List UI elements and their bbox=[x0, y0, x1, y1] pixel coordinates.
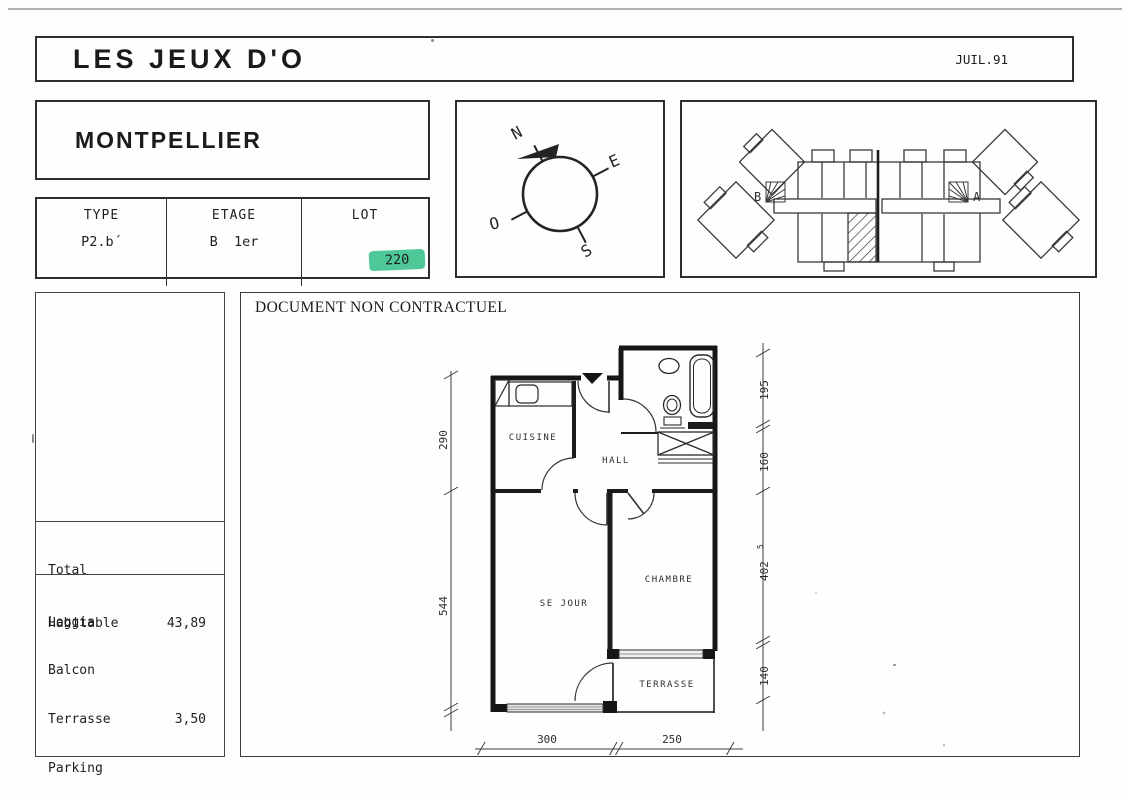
header-box: LES JEUX D'O JUIL.91 bbox=[35, 36, 1074, 82]
scan-speck bbox=[32, 434, 34, 443]
scan-speck bbox=[893, 664, 896, 666]
siteplan-box: B A bbox=[680, 100, 1097, 278]
label-chambre: CHAMBRE bbox=[645, 575, 693, 585]
building-key-plan: B A bbox=[682, 102, 1095, 276]
washbasin-icon bbox=[659, 359, 679, 374]
sejour-window-bay bbox=[507, 704, 603, 712]
scan-speck bbox=[943, 744, 945, 746]
type-value: P2.b´ bbox=[81, 234, 122, 250]
kitchen-sink-icon bbox=[516, 385, 538, 403]
compass-west-label: O bbox=[487, 213, 501, 234]
annex-parking: Parking bbox=[48, 761, 216, 777]
label-cuisine: CUISINE bbox=[509, 433, 557, 443]
type-cell: TYPE P2.b´ bbox=[37, 199, 167, 286]
annex-terrasse: Terrasse bbox=[48, 712, 111, 728]
stair-label-B: B bbox=[754, 190, 761, 204]
etage-value: B 1er bbox=[210, 234, 259, 250]
dim-140: 140 bbox=[758, 666, 771, 686]
annex-section: Loggia Balcon Terrasse 3,50 Parking bbox=[36, 575, 224, 800]
scan-speck bbox=[883, 712, 886, 715]
kitchen-counter bbox=[495, 380, 572, 406]
document-title: LES JEUX D'O bbox=[73, 44, 306, 75]
building-outline bbox=[692, 124, 1085, 271]
dim-544: 544 bbox=[437, 596, 450, 616]
scan-speck bbox=[815, 592, 817, 594]
entry-arrow-icon bbox=[582, 373, 603, 384]
dim-160: 160 bbox=[758, 452, 771, 472]
compass-north-label: N bbox=[508, 122, 525, 143]
label-terrasse: TERRASSE bbox=[639, 680, 694, 690]
compass-south-label: S bbox=[578, 240, 596, 261]
dim-300: 300 bbox=[537, 733, 557, 746]
areas-panel-blank bbox=[36, 293, 224, 522]
areas-panel: Total Habitable 43,89 Loggia Balcon Terr… bbox=[35, 292, 225, 757]
toilet-icon bbox=[664, 396, 681, 415]
annex-balcon: Balcon bbox=[48, 663, 216, 679]
scanned-floorplan-document: LES JEUX D'O JUIL.91 MONTPELLIER TYPE P2… bbox=[0, 0, 1129, 800]
dim-402: 402 bbox=[758, 561, 771, 581]
lot-table: TYPE P2.b´ ETAGE B 1er LOT 220 bbox=[35, 197, 430, 279]
current-unit-hatched bbox=[848, 213, 876, 262]
compass-rose-icon: N E O S bbox=[457, 102, 663, 276]
lot-value: 220 bbox=[304, 234, 425, 286]
compass-box: N E O S bbox=[455, 100, 665, 278]
lot-header: LOT bbox=[352, 208, 378, 223]
dim-290: 290 bbox=[437, 430, 450, 450]
terrasse-rail bbox=[607, 649, 715, 659]
bathroom-fittings bbox=[659, 355, 714, 429]
annex-row: Terrasse 3,50 bbox=[48, 712, 216, 728]
apartment-floorplan: CUISINE HALL SE JOUR CHAMBRE TERRASSE 29… bbox=[241, 293, 1078, 755]
scan-speck bbox=[431, 39, 434, 42]
interior-walls bbox=[493, 381, 715, 650]
document-date: JUIL.91 bbox=[955, 52, 1008, 67]
etage-cell: ETAGE B 1er bbox=[167, 199, 302, 286]
dim-402-sup: 5 bbox=[756, 544, 765, 549]
stair-label-A: A bbox=[973, 190, 981, 204]
highlighter-mark: 220 bbox=[369, 249, 426, 271]
type-header: TYPE bbox=[84, 208, 119, 223]
annex-value: 3,50 bbox=[175, 712, 206, 728]
closet-icon bbox=[658, 432, 714, 463]
label-sejour: SE JOUR bbox=[540, 599, 588, 609]
lot-cell: LOT 220 bbox=[302, 199, 428, 286]
dim-250: 250 bbox=[662, 733, 682, 746]
threshold bbox=[688, 422, 714, 429]
dimension-left bbox=[444, 371, 458, 731]
total-habitable-section: Total Habitable 43,89 bbox=[36, 522, 224, 575]
plan-box: DOCUMENT NON CONTRACTUEL bbox=[240, 292, 1080, 757]
total-value: 43,89 bbox=[167, 615, 206, 633]
label-hall: HALL bbox=[602, 456, 630, 466]
etage-header: ETAGE bbox=[212, 208, 256, 223]
north-needle-icon bbox=[517, 144, 559, 159]
dim-195: 195 bbox=[758, 380, 771, 400]
scan-edge-line bbox=[8, 8, 1122, 10]
city-name: MONTPELLIER bbox=[75, 127, 428, 154]
dimension-bottom bbox=[475, 742, 743, 755]
city-box: MONTPELLIER bbox=[35, 100, 430, 180]
